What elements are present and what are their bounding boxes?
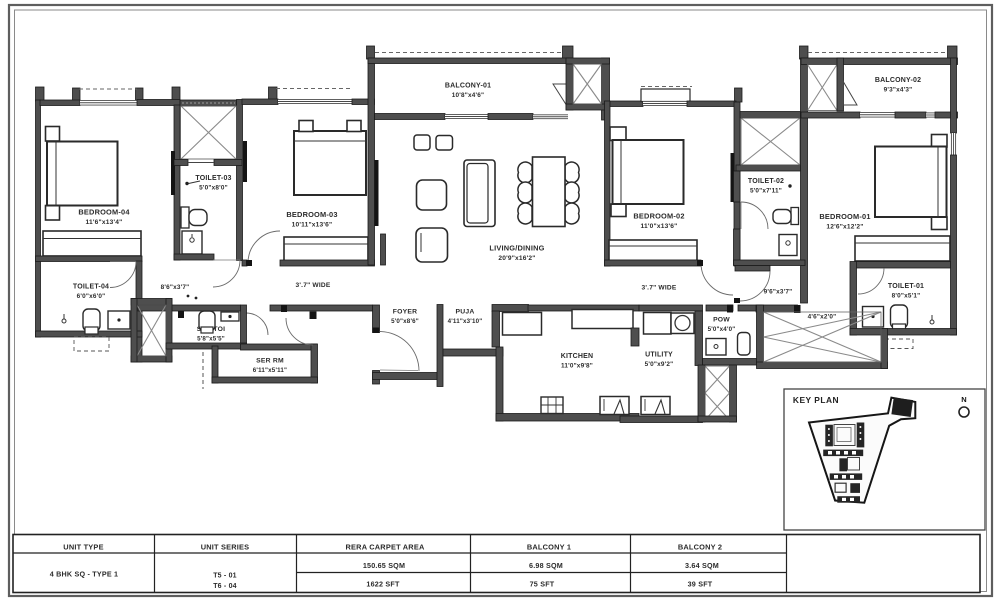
svg-text:BEDROOM-01: BEDROOM-01 xyxy=(819,212,870,221)
svg-text:BEDROOM-04: BEDROOM-04 xyxy=(78,208,130,217)
svg-text:1622 SFT: 1622 SFT xyxy=(366,580,400,589)
svg-text:TOILET-01: TOILET-01 xyxy=(888,283,924,290)
svg-text:10'8"x4'6": 10'8"x4'6" xyxy=(452,92,484,99)
svg-text:T5 - 01: T5 - 01 xyxy=(213,573,237,580)
svg-text:UNIT TYPE: UNIT TYPE xyxy=(63,543,103,552)
svg-text:3'.7" WIDE: 3'.7" WIDE xyxy=(642,285,677,292)
svg-text:SER RM: SER RM xyxy=(256,358,284,365)
svg-text:BALCONY-01: BALCONY-01 xyxy=(445,83,491,90)
svg-text:FOYER: FOYER xyxy=(393,309,417,316)
svg-text:BEDROOM-02: BEDROOM-02 xyxy=(633,212,684,221)
svg-text:11'0"x13'6": 11'0"x13'6" xyxy=(641,223,678,230)
svg-text:6'0"x6'0": 6'0"x6'0" xyxy=(77,293,106,300)
svg-text:POW: POW xyxy=(713,317,730,324)
svg-text:BALCONY 1: BALCONY 1 xyxy=(527,543,571,552)
svg-text:3'.7" WIDE: 3'.7" WIDE xyxy=(296,282,331,289)
svg-text:4'6"x2'0": 4'6"x2'0" xyxy=(808,314,837,321)
svg-text:8'0"x5'1": 8'0"x5'1" xyxy=(892,293,921,300)
svg-text:39 SFT: 39 SFT xyxy=(688,580,713,589)
svg-text:5'0"x7'11": 5'0"x7'11" xyxy=(750,188,782,195)
svg-text:11'0"x9'8": 11'0"x9'8" xyxy=(561,363,593,370)
svg-text:11'6"x13'4": 11'6"x13'4" xyxy=(86,219,123,226)
svg-text:20'9"x16'2": 20'9"x16'2" xyxy=(498,255,535,262)
svg-text:3.64 SQM: 3.64 SQM xyxy=(685,561,719,570)
svg-text:9'6"x3'7": 9'6"x3'7" xyxy=(764,289,793,296)
svg-text:KEY PLAN: KEY PLAN xyxy=(793,395,839,405)
svg-text:KITCHEN: KITCHEN xyxy=(561,353,594,360)
svg-text:5'0"x9'2": 5'0"x9'2" xyxy=(645,361,674,368)
svg-text:6'11"x5'11": 6'11"x5'11" xyxy=(253,367,287,374)
svg-text:UTILITY: UTILITY xyxy=(645,352,673,359)
svg-text:10'11"x13'6": 10'11"x13'6" xyxy=(292,222,333,229)
svg-text:12'6"x12'2": 12'6"x12'2" xyxy=(826,224,863,231)
svg-text:BALCONY-02: BALCONY-02 xyxy=(875,77,921,84)
svg-text:4 BHK SQ - TYPE 1: 4 BHK SQ - TYPE 1 xyxy=(50,570,119,579)
svg-text:BALCONY 2: BALCONY 2 xyxy=(678,543,722,552)
svg-text:5'0"x8'6": 5'0"x8'6" xyxy=(391,318,419,325)
svg-text:LIVING/DINING: LIVING/DINING xyxy=(489,244,544,253)
svg-text:9'3"x4'3": 9'3"x4'3" xyxy=(884,87,913,94)
svg-text:4'11"x3'10": 4'11"x3'10" xyxy=(448,318,483,325)
svg-text:5'0"x4'0": 5'0"x4'0" xyxy=(708,326,736,333)
svg-text:5'0"x8'0": 5'0"x8'0" xyxy=(199,185,228,192)
svg-text:75 SFT: 75 SFT xyxy=(530,580,555,589)
svg-text:150.65 SQM: 150.65 SQM xyxy=(363,561,405,570)
svg-text:TOILET-03: TOILET-03 xyxy=(195,175,231,182)
svg-text:UNIT SERIES: UNIT SERIES xyxy=(201,543,250,552)
svg-text:8'6"x3'7": 8'6"x3'7" xyxy=(161,284,190,291)
svg-text:RERA CARPET AREA: RERA CARPET AREA xyxy=(345,543,424,552)
svg-text:6.98 SQM: 6.98 SQM xyxy=(529,561,563,570)
svg-text:N: N xyxy=(961,395,966,404)
svg-text:T6 - 04: T6 - 04 xyxy=(213,583,237,590)
svg-text:BEDROOM-03: BEDROOM-03 xyxy=(286,210,337,219)
svg-text:TOILET-04: TOILET-04 xyxy=(73,284,109,291)
svg-text:TOILET-02: TOILET-02 xyxy=(748,178,784,185)
svg-text:PUJA: PUJA xyxy=(456,309,475,316)
svg-text:5'8"x5'5": 5'8"x5'5" xyxy=(197,336,225,343)
